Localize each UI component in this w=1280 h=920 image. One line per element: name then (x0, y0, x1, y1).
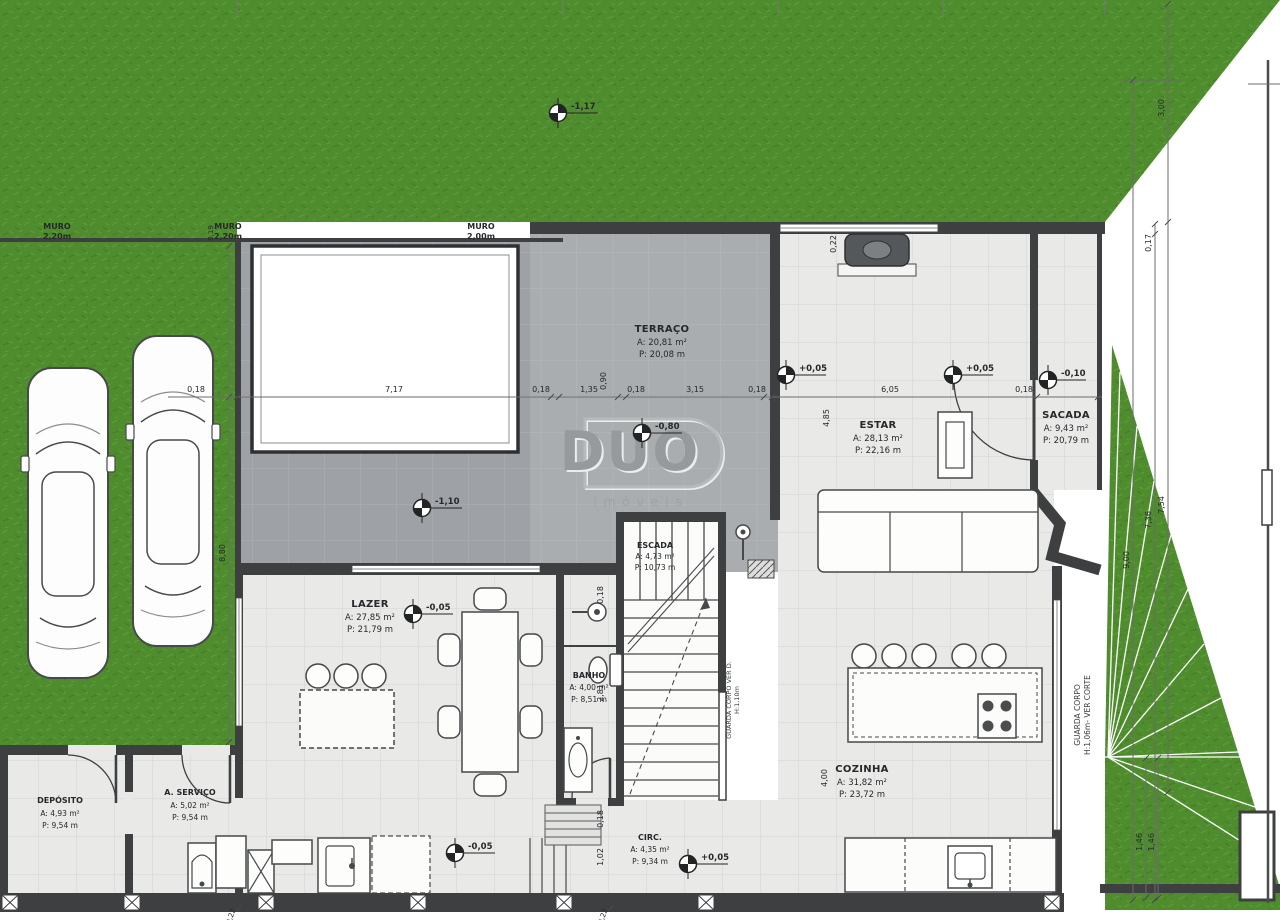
room-perimeter: P: 22,16 m (855, 446, 901, 456)
room-perimeter: P: 8,51 m (571, 695, 607, 704)
room-name: SACADA (1042, 410, 1090, 421)
floor-plan-svg: DUO DUO imóveis 0,18 7,17 0,18 1,35 0,18… (0, 0, 1280, 920)
dim-r-146a: 1,46 (1135, 833, 1144, 851)
dim-i-018a: 0,18 (596, 586, 605, 604)
dim-h-1: 7,17 (385, 385, 403, 394)
grass-top (0, 0, 1280, 222)
laundry-sink (318, 838, 370, 893)
divider-gap (125, 792, 133, 834)
muro-name: MURO (43, 222, 71, 231)
muro-name: MURO (214, 222, 242, 231)
deposito-door-gap (68, 745, 116, 755)
kitchen-sink (948, 846, 992, 888)
dim-i-400: 4,00 (820, 769, 829, 787)
room-area: A: 4,73 m² (635, 552, 674, 561)
muro-spec: 2,20m (214, 232, 242, 241)
room-perimeter: P: 21,79 m (347, 625, 393, 635)
guarda-corpo-stairs-line2: H:1,10m (733, 686, 741, 714)
sacada-floor (1038, 232, 1100, 490)
room-label-escada: ESCADA A: 4,73 m² P: 10,73 m (635, 541, 676, 572)
room-name: LAZER (351, 599, 388, 610)
ramp-hatch (545, 805, 601, 845)
room-name: BANHO (573, 671, 606, 680)
level-label: -0,05 (426, 603, 451, 613)
level-label: -0,80 (655, 422, 680, 432)
room-label-estar: ESTAR A: 28,13 m² P: 22,16 m (853, 420, 903, 456)
servico-door-gap (182, 745, 230, 755)
level-label: -1,17 (571, 102, 596, 112)
bath-sink (564, 728, 592, 792)
car-1 (21, 368, 115, 678)
muro-spec: 2,00m (467, 232, 495, 241)
muro-name: MURO (467, 222, 495, 231)
dim-h-2: 0,18 (532, 385, 550, 394)
room-area: A: 20,81 m² (637, 338, 687, 348)
room-name: ESCADA (637, 541, 674, 550)
dim-r-900: 9,00 (1122, 551, 1131, 569)
muro-spec: 2,20m (43, 232, 71, 241)
dim-h-7: 6,05 (881, 385, 899, 394)
tv-unit (938, 412, 972, 478)
dim-i-485: 4,85 (822, 409, 831, 427)
room-name: ESTAR (859, 420, 896, 431)
sacada-right-wall (1097, 222, 1102, 490)
room-label-terraco: TERRAÇO A: 20,81 m² P: 20,08 m (635, 324, 690, 360)
dim-i-090: 0,90 (599, 372, 608, 390)
room-label-sacada: SACADA A: 9,43 m² P: 20,79 m (1042, 410, 1090, 446)
room-label-banho: BANHO A: 4,00 m² P: 8,51 m (569, 671, 608, 704)
dim-r-017: 0,17 (1144, 234, 1153, 252)
dim-i-022: 0,22 (829, 235, 838, 253)
pool (252, 246, 518, 452)
room-perimeter: P: 20,79 m (1043, 436, 1089, 446)
guarda-corpo-stairs-line1: GUARDA CORPO VER D. (725, 661, 733, 739)
dim-r-146b: 1,46 (1147, 833, 1156, 851)
dim-left-880: 8,80 (218, 544, 227, 562)
room-area: A: 9,43 m² (1044, 424, 1089, 434)
property-gate (1262, 470, 1272, 525)
bottom-main-wall (0, 893, 1064, 912)
dim-h-3: 1,35 (580, 385, 598, 394)
room-area: A: 4,35 m² (630, 845, 669, 854)
dim-h-4: 0,18 (627, 385, 645, 394)
room-area: A: 4,00 m² (569, 683, 608, 692)
grill (838, 234, 916, 276)
room-area: A: 5,02 m² (170, 801, 209, 810)
muro-label-mid: MURO 2,20m (214, 222, 242, 241)
room-perimeter: P: 20,08 m (639, 350, 685, 360)
muro-label-right: MURO 2,00m (467, 222, 495, 241)
dim-h-5: 3,15 (686, 385, 704, 394)
deck-left-wall (235, 240, 241, 570)
banho-left-wall (556, 572, 564, 798)
dim-r-754: 7,54 (1157, 496, 1166, 514)
room-label-cozinha: COZINHA A: 31,82 m² P: 23,72 m (835, 764, 888, 800)
level-label: -0,10 (1061, 369, 1086, 379)
car-2 (126, 336, 220, 646)
room-perimeter: P: 9,54 m (172, 813, 208, 822)
level-label: +0,05 (966, 364, 994, 374)
cooktop (978, 694, 1016, 738)
bar-counter (300, 664, 394, 748)
estar-sacada-wall-top (1030, 232, 1038, 380)
level-label: +0,05 (799, 364, 827, 374)
floor-plan-page: DUO DUO imóveis 0,18 7,17 0,18 1,35 0,18… (0, 0, 1280, 920)
dim-i-018b: 0,18 (596, 810, 605, 828)
room-area: A: 28,13 m² (853, 434, 903, 444)
dim-r-300: 3,00 (1157, 99, 1166, 117)
room-label-lazer: LAZER A: 27,85 m² P: 21,79 m (345, 599, 395, 635)
level-label: +0,05 (701, 853, 729, 863)
room-label-deposito: DEPÓSITO A: 4,93 m² P: 9,54 m (37, 794, 83, 830)
room-name: CIRC. (638, 833, 662, 842)
level-label: -1,10 (435, 497, 460, 507)
room-perimeter: P: 23,72 m (839, 790, 885, 800)
room-name: COZINHA (835, 764, 888, 775)
room-area: A: 27,85 m² (345, 613, 395, 623)
dim-h-8: 0,18 (1015, 385, 1033, 394)
banho-bottom-wall-r (608, 798, 624, 806)
room-name: DEPÓSITO (37, 794, 83, 805)
room-name: TERRAÇO (635, 324, 690, 335)
guarda-corpo-kitchen-line2: H:1,06m- VER CORTE (1083, 675, 1092, 755)
room-perimeter: P: 9,34 m (632, 857, 668, 866)
muro-label-left: MURO 2,20m (43, 222, 71, 241)
room-perimeter: P: 9,54 m (42, 821, 78, 830)
dim-h-0: 0,18 (187, 385, 205, 394)
dim-i-102: 1,02 (596, 848, 605, 866)
stair-top-wall (616, 512, 726, 522)
guarda-corpo-kitchen-line1: GUARDA CORPO (1073, 684, 1082, 746)
level-label: -0,05 (468, 842, 493, 852)
watermark-subtitle: imóveis (593, 495, 688, 509)
dim-r-736: 7,36 (1144, 511, 1153, 529)
left-outer-wall (0, 745, 8, 910)
dim-h-6: 0,18 (748, 385, 766, 394)
room-area: A: 4,93 m² (40, 809, 79, 818)
room-area: A: 31,82 m² (837, 778, 887, 788)
room-name: A. SERVIÇO (164, 788, 216, 797)
kitchen-counter (845, 838, 1056, 892)
room-perimeter: P: 10,73 m (635, 563, 676, 572)
sofa (818, 490, 1038, 572)
